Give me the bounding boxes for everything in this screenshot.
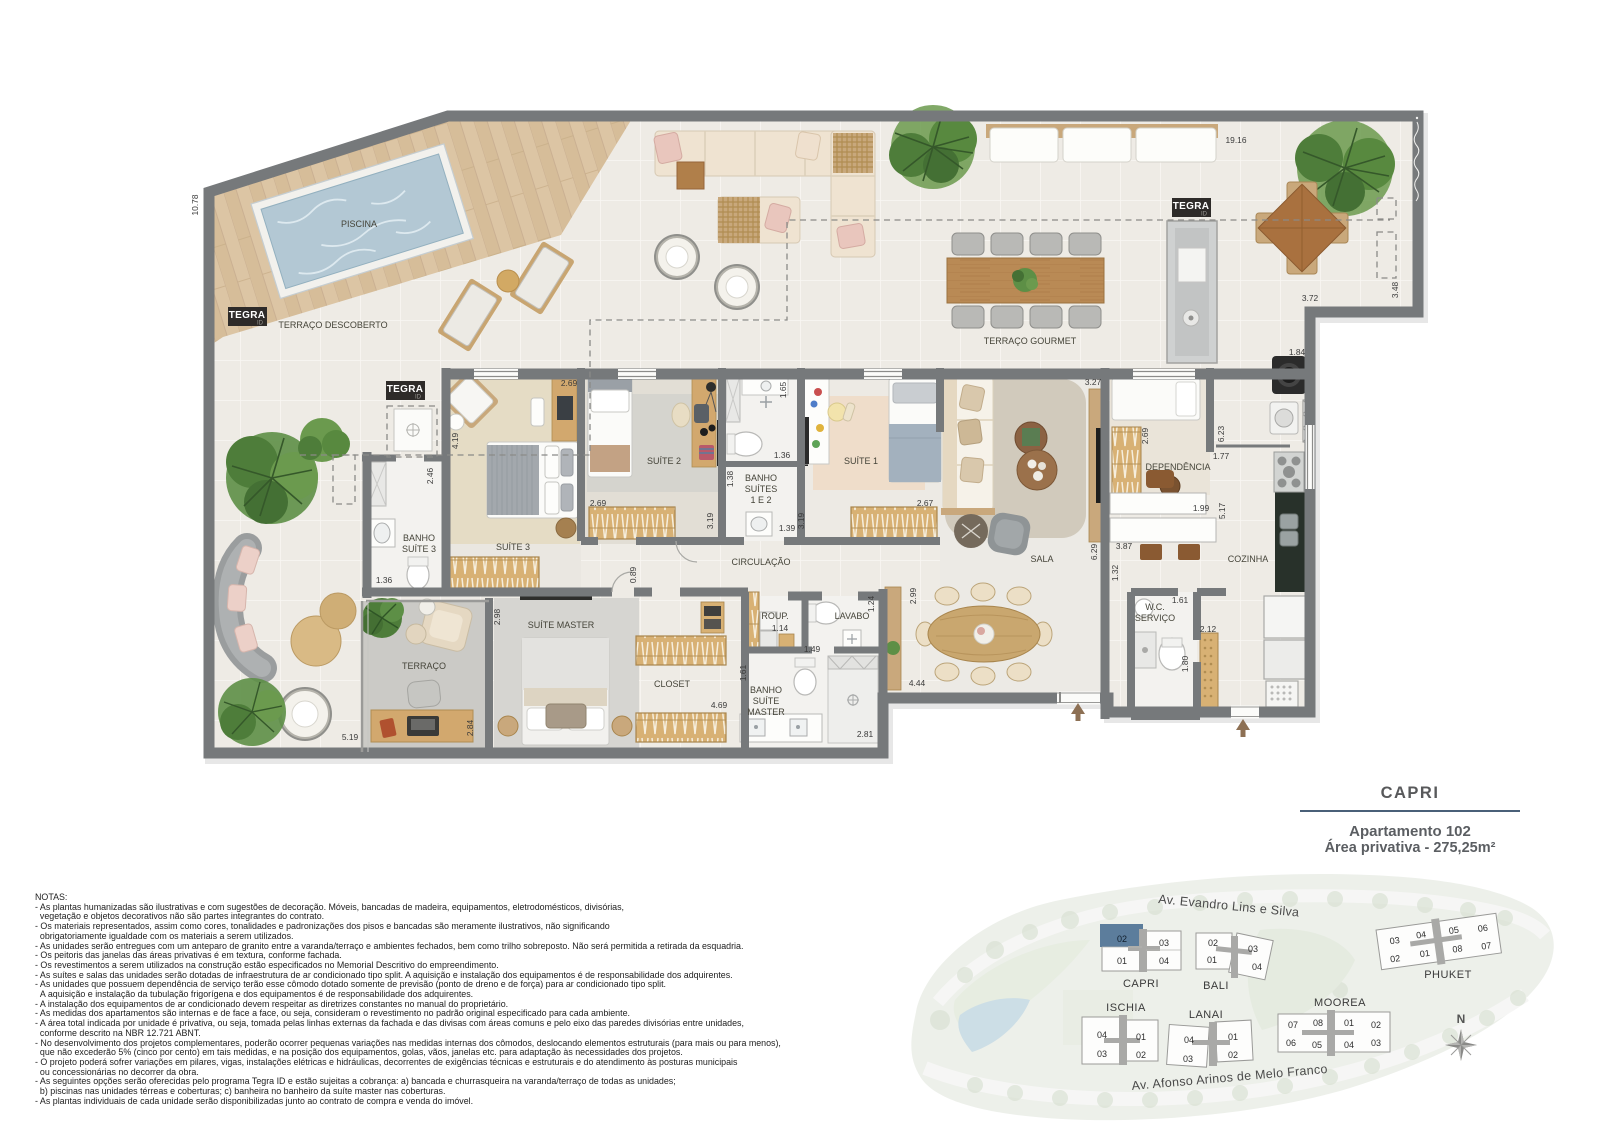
- svg-text:03: 03: [1183, 1054, 1193, 1064]
- svg-text:SUÍTE 2: SUÍTE 2: [647, 456, 681, 466]
- svg-text:SALA: SALA: [1030, 554, 1053, 564]
- svg-text:07: 07: [1481, 940, 1492, 951]
- svg-text:1 E 2: 1 E 2: [750, 495, 771, 505]
- svg-text:ROUP.: ROUP.: [761, 611, 788, 621]
- svg-text:01: 01: [1419, 948, 1430, 959]
- svg-text:04: 04: [1344, 1040, 1354, 1050]
- svg-text:01: 01: [1228, 1032, 1238, 1042]
- svg-text:1.32: 1.32: [1110, 565, 1120, 582]
- svg-text:08: 08: [1313, 1018, 1323, 1028]
- svg-text:2.67: 2.67: [917, 498, 934, 508]
- svg-text:02: 02: [1390, 953, 1401, 964]
- svg-text:1.65: 1.65: [778, 382, 788, 399]
- svg-text:PHUKET: PHUKET: [1424, 969, 1472, 981]
- svg-text:04: 04: [1252, 962, 1262, 972]
- svg-text:03: 03: [1248, 944, 1258, 954]
- svg-text:1.36: 1.36: [774, 450, 791, 460]
- svg-text:SUÍTES: SUÍTES: [745, 484, 778, 494]
- svg-text:04: 04: [1415, 929, 1426, 940]
- svg-text:07: 07: [1288, 1020, 1298, 1030]
- svg-text:LAVABO: LAVABO: [835, 611, 870, 621]
- svg-text:N: N: [1457, 1012, 1466, 1026]
- svg-text:5.19: 5.19: [342, 732, 359, 742]
- svg-text:TERRAÇO DESCOBERTO: TERRAÇO DESCOBERTO: [278, 320, 387, 330]
- svg-text:MOOREA: MOOREA: [1314, 997, 1366, 1009]
- svg-text:3.27: 3.27: [1085, 377, 1102, 387]
- svg-text:06: 06: [1286, 1038, 1296, 1048]
- svg-text:2.98: 2.98: [492, 609, 502, 626]
- svg-text:01: 01: [1136, 1032, 1146, 1042]
- svg-text:W.C.: W.C.: [1145, 602, 1165, 612]
- svg-text:2.12: 2.12: [1200, 624, 1217, 634]
- svg-text:1.77: 1.77: [1213, 451, 1230, 461]
- svg-text:02: 02: [1228, 1050, 1238, 1060]
- svg-text:0.89: 0.89: [628, 567, 638, 584]
- svg-text:SUÍTE: SUÍTE: [753, 696, 780, 706]
- svg-text:MASTER: MASTER: [747, 707, 785, 717]
- svg-text:SUÍTE 3: SUÍTE 3: [402, 544, 436, 554]
- svg-text:1.80: 1.80: [1180, 656, 1190, 673]
- svg-text:03: 03: [1159, 938, 1169, 948]
- svg-text:2.69: 2.69: [1140, 428, 1150, 445]
- svg-text:TEGRA: TEGRA: [1173, 201, 1210, 212]
- svg-text:04: 04: [1097, 1030, 1107, 1040]
- svg-text:SERVIÇO: SERVIÇO: [1135, 613, 1175, 623]
- svg-text:BANHO: BANHO: [750, 685, 782, 695]
- svg-text:3.48: 3.48: [1390, 282, 1400, 299]
- svg-text:BANHO: BANHO: [403, 533, 435, 543]
- svg-text:2.46: 2.46: [425, 468, 435, 485]
- svg-text:BALI: BALI: [1203, 980, 1229, 992]
- svg-text:02: 02: [1136, 1050, 1146, 1060]
- svg-text:1.61: 1.61: [1172, 595, 1189, 605]
- svg-text:ID: ID: [1201, 212, 1208, 218]
- svg-text:05: 05: [1448, 925, 1459, 936]
- svg-text:6.23: 6.23: [1216, 426, 1226, 443]
- svg-text:2.84: 2.84: [465, 720, 475, 737]
- svg-text:LANAI: LANAI: [1189, 1009, 1223, 1021]
- svg-text:1.49: 1.49: [804, 644, 821, 654]
- svg-text:1.99: 1.99: [1193, 503, 1210, 513]
- svg-text:06: 06: [1477, 923, 1488, 934]
- svg-text:CAPRI: CAPRI: [1123, 978, 1159, 990]
- svg-text:CLOSET: CLOSET: [654, 679, 691, 689]
- svg-text:01: 01: [1117, 956, 1127, 966]
- svg-text:08: 08: [1452, 943, 1463, 954]
- svg-text:CIRCULAÇÃO: CIRCULAÇÃO: [731, 557, 790, 567]
- svg-text:04: 04: [1184, 1035, 1194, 1045]
- svg-text:03: 03: [1097, 1049, 1107, 1059]
- svg-text:2.69: 2.69: [561, 378, 578, 388]
- svg-text:1.36: 1.36: [376, 575, 393, 585]
- svg-text:3.19: 3.19: [705, 513, 715, 530]
- svg-text:04: 04: [1159, 956, 1169, 966]
- svg-text:ID: ID: [415, 395, 422, 401]
- svg-text:19.16: 19.16: [1226, 135, 1247, 145]
- svg-text:TERRAÇO: TERRAÇO: [402, 661, 446, 671]
- svg-text:01: 01: [1344, 1018, 1354, 1028]
- svg-text:1.39: 1.39: [779, 523, 796, 533]
- svg-text:TEGRA: TEGRA: [387, 384, 424, 395]
- svg-text:2.99: 2.99: [908, 588, 918, 605]
- svg-text:SUÍTE 1: SUÍTE 1: [844, 456, 878, 466]
- svg-text:03: 03: [1371, 1038, 1381, 1048]
- svg-text:4.19: 4.19: [450, 433, 460, 450]
- svg-text:1.14: 1.14: [772, 623, 789, 633]
- svg-text:6.29: 6.29: [1089, 544, 1099, 561]
- svg-text:ID: ID: [257, 321, 264, 327]
- svg-text:ISCHIA: ISCHIA: [1106, 1002, 1146, 1014]
- svg-text:SUÍTE 3: SUÍTE 3: [496, 542, 530, 552]
- svg-text:BANHO: BANHO: [745, 473, 777, 483]
- svg-text:01: 01: [1207, 955, 1217, 965]
- svg-text:05: 05: [1312, 1040, 1322, 1050]
- svg-text:COZINHA: COZINHA: [1228, 554, 1269, 564]
- svg-text:5.17: 5.17: [1217, 503, 1227, 520]
- svg-text:DEPENDÊNCIA: DEPENDÊNCIA: [1145, 462, 1210, 472]
- svg-text:3.72: 3.72: [1302, 293, 1319, 303]
- svg-text:3.87: 3.87: [1116, 541, 1133, 551]
- svg-text:2.69: 2.69: [590, 498, 607, 508]
- svg-text:02: 02: [1208, 938, 1218, 948]
- svg-text:1.61: 1.61: [738, 665, 748, 682]
- svg-text:03: 03: [1389, 935, 1400, 946]
- svg-text:1.84: 1.84: [1289, 347, 1306, 357]
- svg-text:10.78: 10.78: [190, 194, 200, 215]
- svg-text:SUÍTE MASTER: SUÍTE MASTER: [528, 620, 595, 630]
- svg-text:1.24: 1.24: [866, 596, 876, 613]
- svg-text:TEGRA: TEGRA: [229, 310, 266, 321]
- svg-text:2.81: 2.81: [857, 729, 874, 739]
- svg-text:3.19: 3.19: [796, 513, 806, 530]
- svg-text:1.38: 1.38: [725, 471, 735, 488]
- svg-text:02: 02: [1371, 1020, 1381, 1030]
- svg-text:PISCINA: PISCINA: [341, 219, 377, 229]
- svg-text:TERRAÇO GOURMET: TERRAÇO GOURMET: [984, 336, 1077, 346]
- svg-text:4.44: 4.44: [909, 678, 926, 688]
- svg-text:4.69: 4.69: [711, 700, 728, 710]
- svg-text:02: 02: [1117, 934, 1127, 944]
